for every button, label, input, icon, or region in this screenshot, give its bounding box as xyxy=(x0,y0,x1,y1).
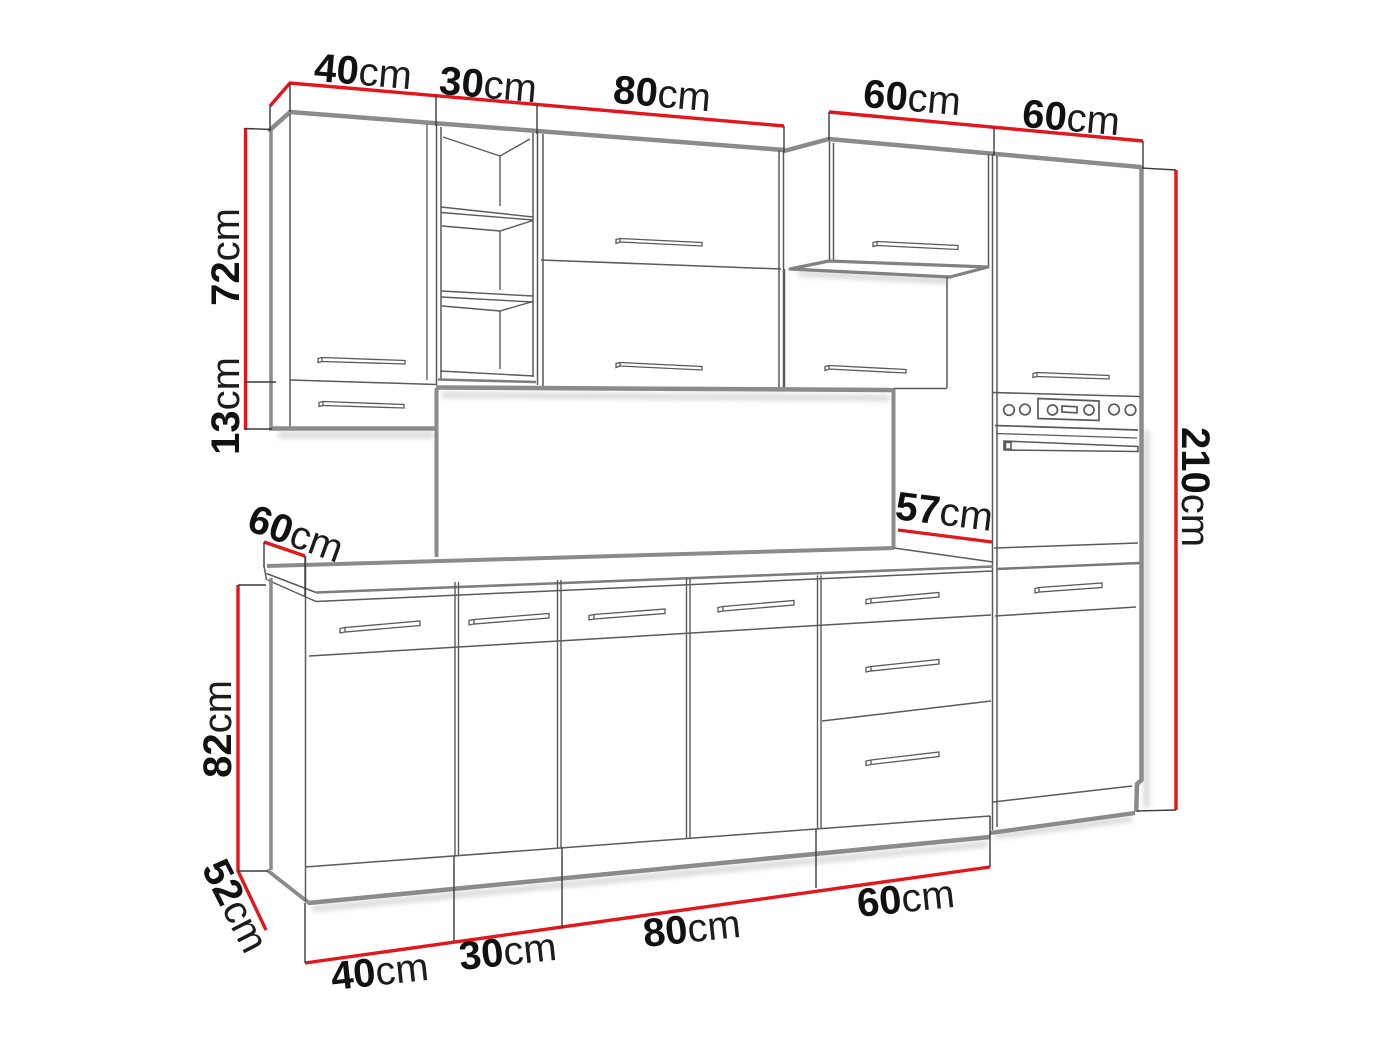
svg-text:72cm: 72cm xyxy=(204,208,248,306)
svg-text:13cm: 13cm xyxy=(204,357,248,455)
svg-text:60cm: 60cm xyxy=(861,72,962,124)
svg-text:30cm: 30cm xyxy=(437,59,538,111)
svg-text:60cm: 60cm xyxy=(1020,92,1121,144)
svg-text:40cm: 40cm xyxy=(312,46,413,98)
svg-text:82cm: 82cm xyxy=(196,680,240,778)
svg-text:80cm: 80cm xyxy=(611,68,712,120)
svg-text:210cm: 210cm xyxy=(1173,427,1217,547)
